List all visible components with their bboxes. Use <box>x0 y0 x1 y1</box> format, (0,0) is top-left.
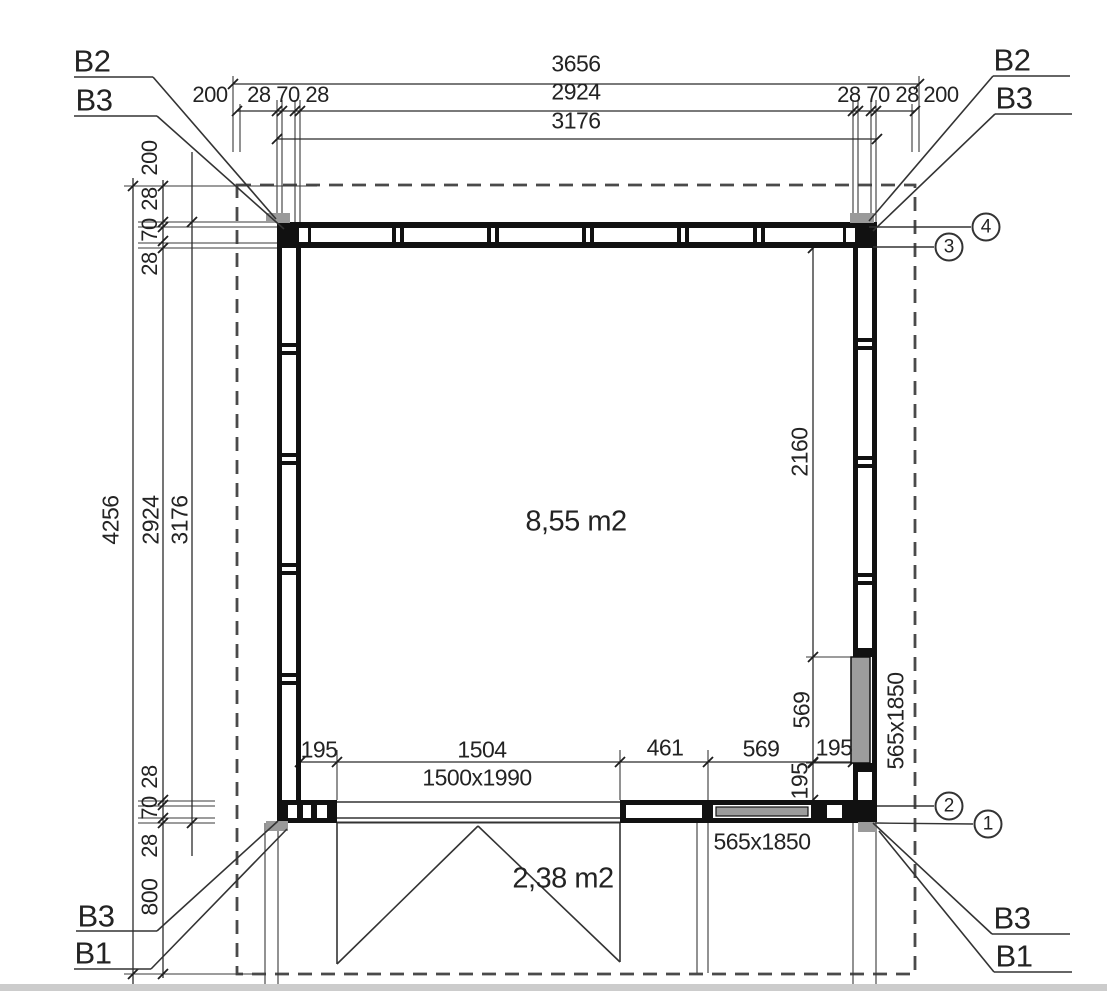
dim-outer-height: 3176 <box>169 495 192 544</box>
dim-pier: 461 <box>647 737 684 760</box>
dim-overall-height: 4256 <box>100 495 123 544</box>
dim-window-offset-v: 569 <box>791 692 814 729</box>
section-marker-b1-br: B1 <box>996 941 1033 972</box>
dim-overhang-left: 200 <box>192 84 227 106</box>
window-right-glazing <box>851 657 870 763</box>
section-marker-b3-tl: B3 <box>76 85 113 116</box>
dim-wall-bottom-28b: 28 <box>139 834 161 857</box>
window-bottom-label: 565x1850 <box>713 831 810 854</box>
door-opening <box>337 802 620 823</box>
section-marker-b3-bl: B3 <box>78 901 115 932</box>
sheet-edge <box>0 984 1107 991</box>
grid-bubble-1: 1 <box>974 810 1003 839</box>
dim-wall-bottom-70: 70 <box>139 796 161 819</box>
porch-area: 2,38 m2 <box>512 865 613 894</box>
dim-window-jamb-v: 195 <box>789 763 812 800</box>
door-size-label: 1500x1990 <box>422 767 531 790</box>
dim-wall-bottom-28a: 28 <box>139 765 161 788</box>
dim-wall-top-70: 70 <box>139 218 161 241</box>
dim-clear-width: 2924 <box>551 81 600 104</box>
window-right-label: 565x1850 <box>885 672 908 769</box>
floor-plan: 3656 2924 200 28 70 28 28 70 28 200 3176… <box>0 0 1107 991</box>
section-marker-b2-tr: B2 <box>994 45 1031 76</box>
dim-overall-width: 3656 <box>551 53 600 76</box>
dim-wall-top-28b: 28 <box>139 252 161 275</box>
dim-door-offset: 195 <box>301 739 338 762</box>
dim-overhang-right: 200 <box>923 84 958 106</box>
dim-window-offset-h: 569 <box>743 738 780 761</box>
grid-bubble-4: 4 <box>972 213 1001 242</box>
dim-right-wall-clear: 2160 <box>789 427 812 476</box>
section-marker-b3-br: B3 <box>994 903 1031 934</box>
dim-wall-layers-left: 28 70 28 <box>247 84 329 106</box>
dim-wall-layers-right: 28 70 28 <box>837 84 919 106</box>
grid-bubble-2: 2 <box>935 792 964 821</box>
section-marker-b1-bl: B1 <box>75 938 112 969</box>
dim-porch-depth: 800 <box>139 879 162 916</box>
main-room-area: 8,55 m2 <box>525 508 626 537</box>
dim-door-width: 1504 <box>457 739 506 762</box>
dim-clear-height: 2924 <box>140 495 163 544</box>
grid-bubble-3: 3 <box>935 233 964 262</box>
dim-overhang-top: 200 <box>139 140 161 175</box>
section-marker-b2-tl: B2 <box>74 46 111 77</box>
section-marker-b3-tr: B3 <box>996 83 1033 114</box>
dim-window-jamb-h: 195 <box>816 737 853 760</box>
dim-outer-width: 3176 <box>551 110 600 133</box>
dim-wall-top-28a: 28 <box>139 187 161 210</box>
window-bottom-glazing <box>716 807 808 816</box>
